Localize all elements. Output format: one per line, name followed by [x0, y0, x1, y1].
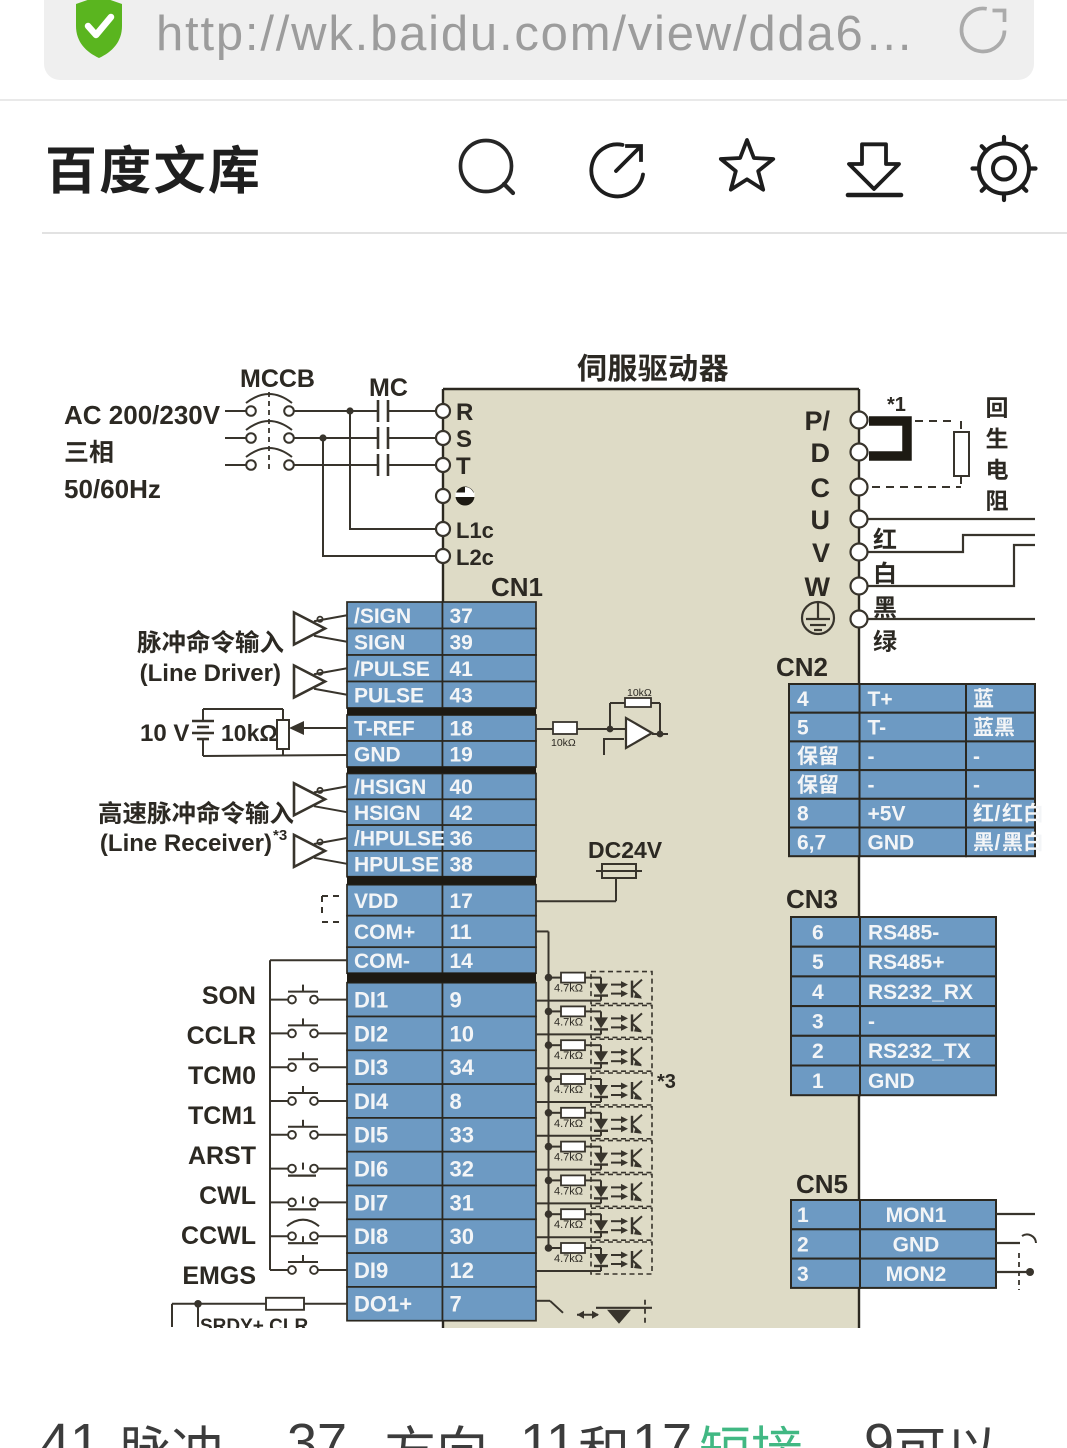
svg-text:-: - [868, 745, 875, 768]
svg-text:1: 1 [797, 1204, 809, 1227]
svg-text:VDD: VDD [354, 890, 398, 913]
svg-text:GND: GND [893, 1233, 940, 1256]
svg-text:/PULSE: /PULSE [354, 658, 430, 681]
svg-text:DO1+: DO1+ [354, 1292, 412, 1317]
svg-text:MON1: MON1 [886, 1204, 947, 1227]
svg-text:CN2: CN2 [776, 652, 828, 682]
svg-text:17: 17 [450, 890, 473, 913]
svg-text:41: 41 [40, 1413, 100, 1448]
svg-text:42: 42 [450, 802, 473, 825]
svg-text:17: 17 [632, 1413, 692, 1448]
svg-text:38: 38 [450, 853, 474, 876]
svg-text:T-REF: T-REF [354, 718, 415, 741]
svg-text:3: 3 [797, 1263, 809, 1286]
svg-text:PULSE: PULSE [354, 684, 424, 707]
svg-text:U: U [811, 505, 831, 535]
svg-text:8: 8 [797, 803, 809, 826]
svg-text:V: V [812, 538, 830, 568]
svg-text:10 V: 10 V [140, 720, 189, 747]
svg-text:DI7: DI7 [354, 1190, 388, 1215]
svg-text:DI3: DI3 [354, 1055, 388, 1080]
svg-text:MCCB: MCCB [240, 365, 315, 393]
svg-text:36: 36 [450, 828, 473, 851]
svg-text:DI4: DI4 [354, 1089, 389, 1114]
svg-text:T+: T+ [868, 688, 893, 711]
svg-text:6,7: 6,7 [797, 831, 826, 854]
svg-text:4: 4 [812, 981, 824, 1004]
svg-text:-: - [868, 774, 875, 797]
svg-text:CCWL: CCWL [181, 1222, 256, 1250]
svg-text:TCM1: TCM1 [188, 1102, 256, 1130]
svg-text:30: 30 [450, 1224, 474, 1249]
svg-text:10kΩ: 10kΩ [551, 737, 576, 749]
svg-text:9: 9 [864, 1413, 894, 1448]
svg-text:41: 41 [450, 658, 474, 681]
svg-text:CCLR: CCLR [187, 1022, 256, 1050]
svg-text:P/: P/ [804, 406, 830, 436]
svg-text:RS232_TX: RS232_TX [868, 1040, 971, 1063]
svg-text:12: 12 [450, 1258, 474, 1283]
svg-text:40: 40 [450, 776, 473, 799]
svg-text:33: 33 [450, 1123, 474, 1148]
svg-text:5: 5 [812, 951, 824, 974]
svg-text:32: 32 [450, 1157, 474, 1182]
svg-text:SON: SON [202, 982, 256, 1010]
svg-text:CN1: CN1 [491, 572, 543, 602]
svg-text:(Line Driver): (Line Driver) [140, 660, 281, 687]
svg-text:10: 10 [450, 1021, 474, 1046]
svg-text:DI8: DI8 [354, 1224, 388, 1249]
svg-text:50/60Hz: 50/60Hz [64, 474, 161, 504]
svg-text:11: 11 [450, 921, 473, 944]
svg-text:RS232_RX: RS232_RX [868, 981, 973, 1004]
svg-text:DC24V: DC24V [588, 837, 663, 863]
svg-text:18: 18 [450, 718, 474, 741]
svg-text:TCM0: TCM0 [188, 1062, 256, 1090]
svg-text:DI1: DI1 [354, 988, 388, 1013]
svg-text:COM+: COM+ [354, 921, 415, 944]
svg-text:W: W [805, 572, 831, 602]
svg-text:37: 37 [287, 1413, 347, 1448]
svg-text:L1c: L1c [456, 518, 494, 543]
svg-text:2: 2 [812, 1040, 824, 1063]
svg-text:RS485-: RS485- [868, 921, 939, 944]
svg-text:*3: *3 [273, 827, 287, 844]
svg-text:CN3: CN3 [786, 884, 838, 914]
svg-text:4.7kΩ: 4.7kΩ [554, 1118, 583, 1130]
svg-text:GND: GND [868, 1070, 915, 1093]
svg-text:1: 1 [812, 1070, 824, 1093]
svg-text:4.7kΩ: 4.7kΩ [554, 1253, 583, 1265]
svg-text:9: 9 [450, 988, 462, 1013]
svg-text:5: 5 [797, 717, 809, 740]
svg-text:2: 2 [797, 1233, 809, 1256]
svg-text:/: / [995, 803, 1001, 826]
svg-text:3: 3 [812, 1010, 824, 1033]
svg-text:/SIGN: /SIGN [354, 605, 411, 628]
svg-text:34: 34 [450, 1055, 475, 1080]
svg-text:COM-: COM- [354, 950, 410, 973]
svg-text:DI5: DI5 [354, 1123, 388, 1148]
svg-text:S: S [456, 426, 472, 453]
svg-text:4: 4 [797, 688, 809, 711]
svg-text:/HPULSE: /HPULSE [354, 828, 445, 851]
svg-text:4.7kΩ: 4.7kΩ [554, 1050, 583, 1062]
svg-text:SIGN: SIGN [354, 631, 405, 654]
svg-text:DI2: DI2 [354, 1021, 388, 1046]
svg-text:4.7kΩ: 4.7kΩ [554, 1185, 583, 1197]
svg-text:D: D [811, 438, 831, 468]
svg-text:*1: *1 [887, 394, 906, 416]
svg-text:37: 37 [450, 605, 473, 628]
svg-text:4.7kΩ: 4.7kΩ [554, 1084, 583, 1096]
svg-text:EMGS: EMGS [182, 1262, 256, 1290]
svg-text:6: 6 [812, 921, 824, 944]
svg-text:HSIGN: HSIGN [354, 802, 421, 825]
svg-text:T: T [456, 453, 471, 480]
svg-text:*3: *3 [657, 1071, 676, 1093]
svg-text:14: 14 [450, 950, 474, 973]
svg-text:GND: GND [354, 744, 401, 767]
svg-text:DI9: DI9 [354, 1258, 388, 1283]
svg-text:39: 39 [450, 631, 473, 654]
svg-text:4.7kΩ: 4.7kΩ [554, 983, 583, 995]
svg-text:C: C [811, 473, 831, 503]
svg-text:10kΩ: 10kΩ [221, 720, 278, 746]
svg-text:4.7kΩ: 4.7kΩ [554, 1152, 583, 1164]
svg-text:T-: T- [868, 717, 887, 740]
svg-text:CN5: CN5 [796, 1169, 848, 1199]
svg-text:/: / [995, 831, 1001, 854]
svg-text:-: - [973, 774, 980, 797]
svg-text:10kΩ: 10kΩ [627, 687, 652, 699]
svg-text:GND: GND [868, 831, 915, 854]
svg-text:L2c: L2c [456, 545, 494, 570]
svg-text:RS485+: RS485+ [868, 951, 944, 974]
svg-text:43: 43 [450, 684, 473, 707]
svg-text:CWL: CWL [199, 1182, 256, 1210]
svg-text:7: 7 [450, 1292, 462, 1317]
svg-text:AC 200/230V: AC 200/230V [64, 400, 221, 430]
svg-text:4.7kΩ: 4.7kΩ [554, 1219, 583, 1231]
svg-text:4.7kΩ: 4.7kΩ [554, 1016, 583, 1028]
svg-text:MC: MC [369, 374, 408, 402]
svg-text:DI6: DI6 [354, 1157, 388, 1182]
svg-text:R: R [456, 399, 473, 426]
svg-text:HPULSE: HPULSE [354, 853, 439, 876]
svg-text:/HSIGN: /HSIGN [354, 776, 426, 799]
svg-text:8: 8 [450, 1089, 462, 1114]
svg-text:+5V: +5V [868, 803, 906, 826]
svg-text:-: - [868, 1010, 875, 1033]
svg-text:19: 19 [450, 744, 473, 767]
svg-text:(Line Receiver): (Line Receiver) [100, 830, 272, 857]
svg-text:31: 31 [450, 1190, 474, 1215]
svg-text:-: - [973, 745, 980, 768]
svg-text:MON2: MON2 [886, 1263, 947, 1286]
svg-text:ARST: ARST [188, 1142, 256, 1170]
svg-text:11: 11 [520, 1413, 576, 1448]
